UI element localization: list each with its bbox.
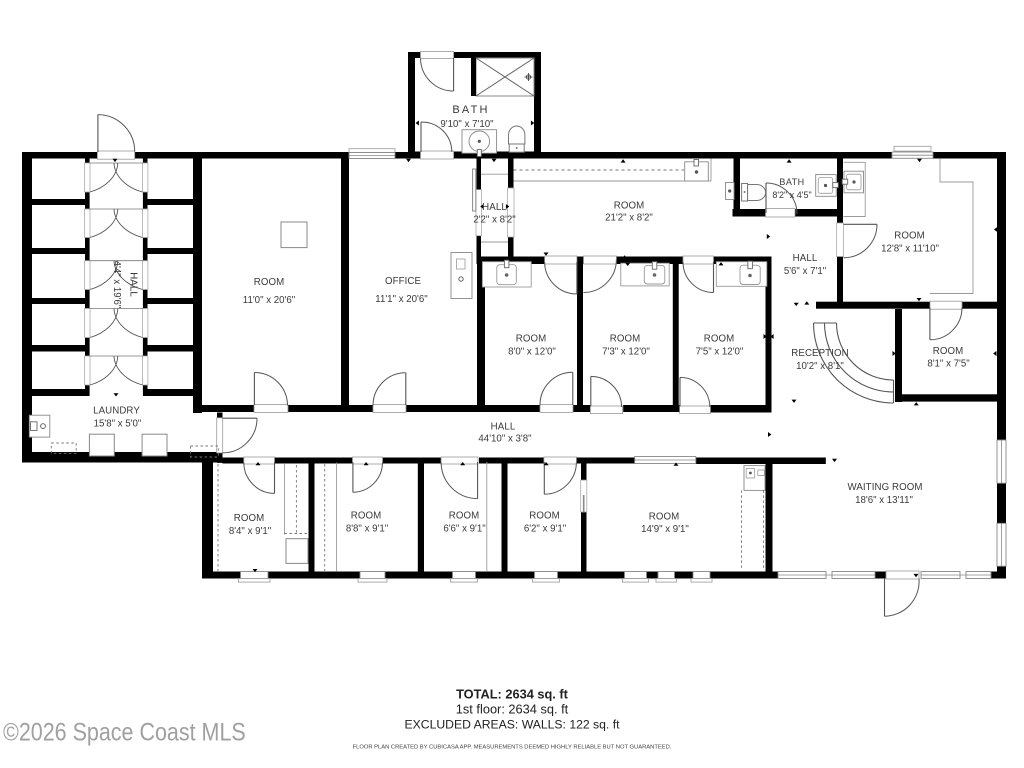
svg-text:12'8" x 11'10": 12'8" x 11'10" bbox=[881, 244, 939, 255]
svg-text:1st floor: 2634 sq. ft: 1st floor: 2634 sq. ft bbox=[456, 701, 569, 716]
svg-text:HALL: HALL bbox=[482, 202, 507, 213]
svg-text:HALL: HALL bbox=[128, 272, 139, 297]
svg-text:WAITING ROOM: WAITING ROOM bbox=[847, 482, 922, 493]
svg-text:ROOM: ROOM bbox=[704, 334, 735, 345]
svg-text:10'2" x 8'1": 10'2" x 8'1" bbox=[796, 361, 844, 372]
svg-text:15'8" x 5'0": 15'8" x 5'0" bbox=[94, 419, 142, 430]
svg-text:4'4" x 19'6": 4'4" x 19'6" bbox=[111, 261, 122, 309]
svg-text:ROOM: ROOM bbox=[610, 334, 641, 345]
svg-text:8'2" x 4'5": 8'2" x 4'5" bbox=[772, 190, 811, 200]
svg-text:HALL: HALL bbox=[491, 422, 516, 433]
svg-text:ROOM: ROOM bbox=[933, 346, 964, 357]
svg-text:HALL: HALL bbox=[793, 253, 818, 264]
svg-text:21'2" x 8'2": 21'2" x 8'2" bbox=[605, 213, 653, 224]
svg-text:ROOM: ROOM bbox=[894, 231, 925, 242]
svg-text:14'9" x 9'1": 14'9" x 9'1" bbox=[641, 524, 689, 535]
svg-text:OFFICE: OFFICE bbox=[385, 276, 422, 287]
svg-text:ROOM: ROOM bbox=[516, 334, 547, 345]
svg-text:11'0" x 20'6": 11'0" x 20'6" bbox=[243, 295, 296, 306]
svg-text:44'10" x 3'8": 44'10" x 3'8" bbox=[478, 434, 532, 445]
svg-text:ROOM: ROOM bbox=[529, 511, 560, 522]
svg-text:9'10" x 7'10": 9'10" x 7'10" bbox=[440, 119, 494, 130]
svg-text:EXCLUDED AREAS: WALLS: 122 sq.: EXCLUDED AREAS: WALLS: 122 sq. ft bbox=[405, 717, 621, 731]
svg-text:BATH: BATH bbox=[452, 104, 489, 116]
svg-text:8'1" x 7'5": 8'1" x 7'5" bbox=[927, 359, 970, 370]
svg-text:ROOM: ROOM bbox=[234, 513, 265, 524]
svg-text:LAUNDRY: LAUNDRY bbox=[93, 406, 140, 417]
svg-text:8'8" x 9'1": 8'8" x 9'1" bbox=[346, 524, 389, 535]
svg-text:ROOM: ROOM bbox=[449, 511, 480, 522]
svg-text:7'5" x 12'0": 7'5" x 12'0" bbox=[696, 347, 744, 358]
svg-text:ROOM: ROOM bbox=[254, 277, 285, 288]
svg-text:TOTAL: 2634 sq. ft: TOTAL: 2634 sq. ft bbox=[456, 687, 569, 702]
svg-text:6'6" x 9'1": 6'6" x 9'1" bbox=[443, 524, 486, 535]
svg-text:7'3" x 12'0": 7'3" x 12'0" bbox=[602, 347, 650, 358]
svg-text:6'2" x 9'1": 6'2" x 9'1" bbox=[524, 524, 567, 535]
svg-text:18'6" x 13'11": 18'6" x 13'11" bbox=[855, 495, 913, 506]
svg-text:FLOOR PLAN CREATED BY CUBICASA: FLOOR PLAN CREATED BY CUBICASA APP. MEAS… bbox=[353, 745, 672, 751]
svg-text:11'1" x 20'6": 11'1" x 20'6" bbox=[375, 294, 428, 305]
svg-text:©2026 Space Coast MLS: ©2026 Space Coast MLS bbox=[3, 718, 246, 746]
svg-text:8'0" x 12'0": 8'0" x 12'0" bbox=[508, 347, 556, 358]
svg-text:RECEPTION: RECEPTION bbox=[791, 348, 848, 359]
svg-text:2'2" x 8'2": 2'2" x 8'2" bbox=[473, 215, 516, 226]
svg-text:BATH: BATH bbox=[779, 177, 804, 187]
svg-text:5'6" x 7'1": 5'6" x 7'1" bbox=[784, 266, 827, 277]
svg-text:ROOM: ROOM bbox=[614, 201, 645, 212]
svg-text:ROOM: ROOM bbox=[351, 511, 382, 522]
svg-text:8'4" x 9'1": 8'4" x 9'1" bbox=[229, 526, 272, 537]
svg-text:ROOM: ROOM bbox=[649, 512, 680, 523]
